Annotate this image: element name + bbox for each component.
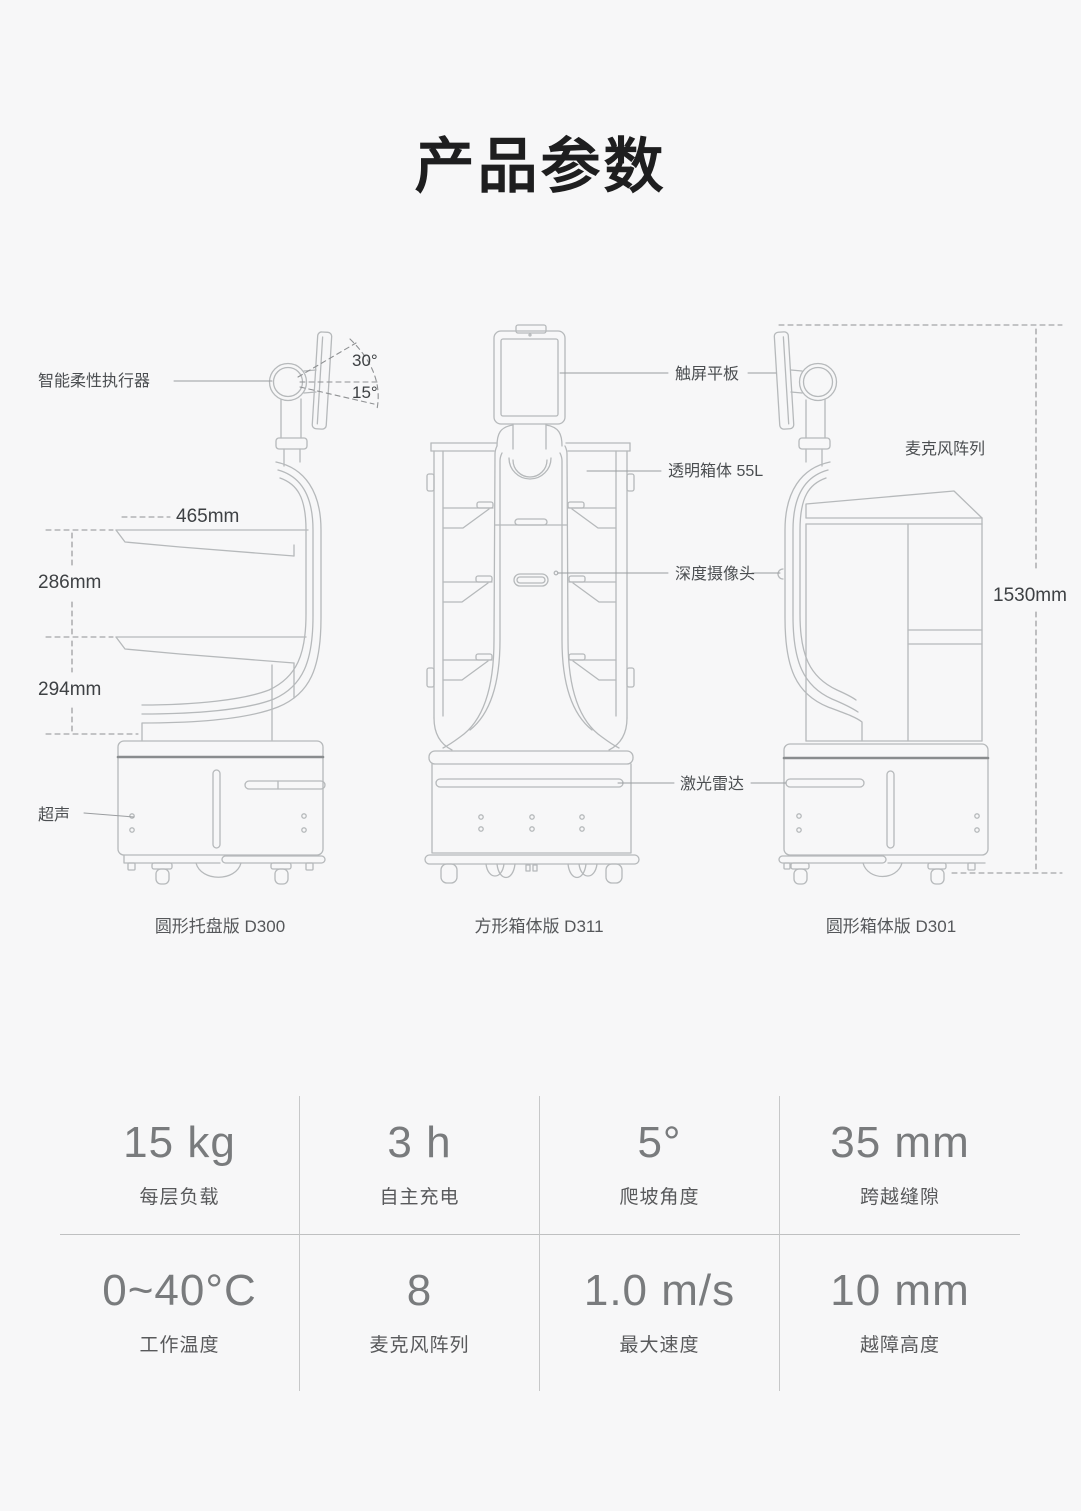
spec-label: 麦克风阵列 [369, 1330, 469, 1357]
caption-model-d300: 圆形托盘版 D300 [155, 917, 285, 937]
label-touchscreen: 触屏平板 [675, 365, 739, 384]
spec-cell-charging: 3 h 自主充电 [300, 1096, 540, 1235]
spec-value: 15 kg [123, 1121, 236, 1165]
spec-value: 5° [637, 1121, 681, 1165]
label-dim-465: 465mm [176, 506, 239, 529]
robot-d311-drawing [425, 325, 639, 883]
spec-cell-mic-array: 8 麦克风阵列 [300, 1235, 540, 1391]
spec-label: 越障高度 [860, 1330, 940, 1357]
dimension-lines [46, 325, 1062, 873]
spec-cell-obstacle-height: 10 mm 越障高度 [780, 1235, 1020, 1391]
label-dim-1530: 1530mm [993, 585, 1067, 608]
label-ultrasound: 超声 [38, 806, 70, 825]
robot-line-art [0, 0, 1081, 960]
label-actuator: 智能柔性执行器 [38, 372, 150, 391]
label-mic-array: 麦克风阵列 [905, 440, 985, 459]
product-spec-page: 产品参数 [0, 0, 1081, 1511]
spec-label: 跨越缝隙 [860, 1182, 940, 1209]
spec-value: 8 [407, 1269, 432, 1313]
caption-model-d301: 圆形箱体版 D301 [826, 917, 956, 937]
label-lidar: 激光雷达 [680, 775, 744, 794]
label-angle-30: 30° [352, 351, 378, 371]
spec-cell-max-speed: 1.0 m/s 最大速度 [540, 1235, 780, 1391]
spec-cell-gap-crossing: 35 mm 跨越缝隙 [780, 1096, 1020, 1235]
spec-cell-payload: 15 kg 每层负载 [60, 1096, 300, 1235]
spec-value: 0~40°C [102, 1269, 256, 1313]
label-dim-286: 286mm [38, 572, 101, 595]
robot-d300-drawing [116, 332, 332, 884]
label-dim-294: 294mm [38, 679, 101, 702]
spec-cell-climb-angle: 5° 爬坡角度 [540, 1096, 780, 1235]
label-angle-15: 15° [352, 383, 378, 403]
robot-d301-drawing [774, 332, 988, 884]
spec-cell-temperature: 0~40°C 工作温度 [60, 1235, 300, 1391]
spec-value: 3 h [387, 1121, 451, 1165]
label-transparent-box: 透明箱体 55L [668, 462, 763, 481]
label-depth-camera: 深度摄像头 [675, 565, 755, 584]
spec-label: 自主充电 [379, 1182, 459, 1209]
spec-grid: 15 kg 每层负载 3 h 自主充电 5° 爬坡角度 35 mm 跨越缝隙 0… [60, 1096, 1020, 1391]
spec-label: 最大速度 [619, 1330, 699, 1357]
spec-value: 10 mm [830, 1269, 969, 1313]
spec-label: 工作温度 [139, 1330, 219, 1357]
spec-label: 每层负载 [139, 1182, 219, 1209]
spec-value: 35 mm [830, 1121, 969, 1165]
diagram-area: 智能柔性执行器 30° 15° 465mm 286mm 294mm 超声 触屏平… [0, 0, 1081, 960]
spec-label: 爬坡角度 [619, 1182, 699, 1209]
spec-value: 1.0 m/s [584, 1269, 735, 1313]
caption-model-d311: 方形箱体版 D311 [474, 917, 603, 937]
